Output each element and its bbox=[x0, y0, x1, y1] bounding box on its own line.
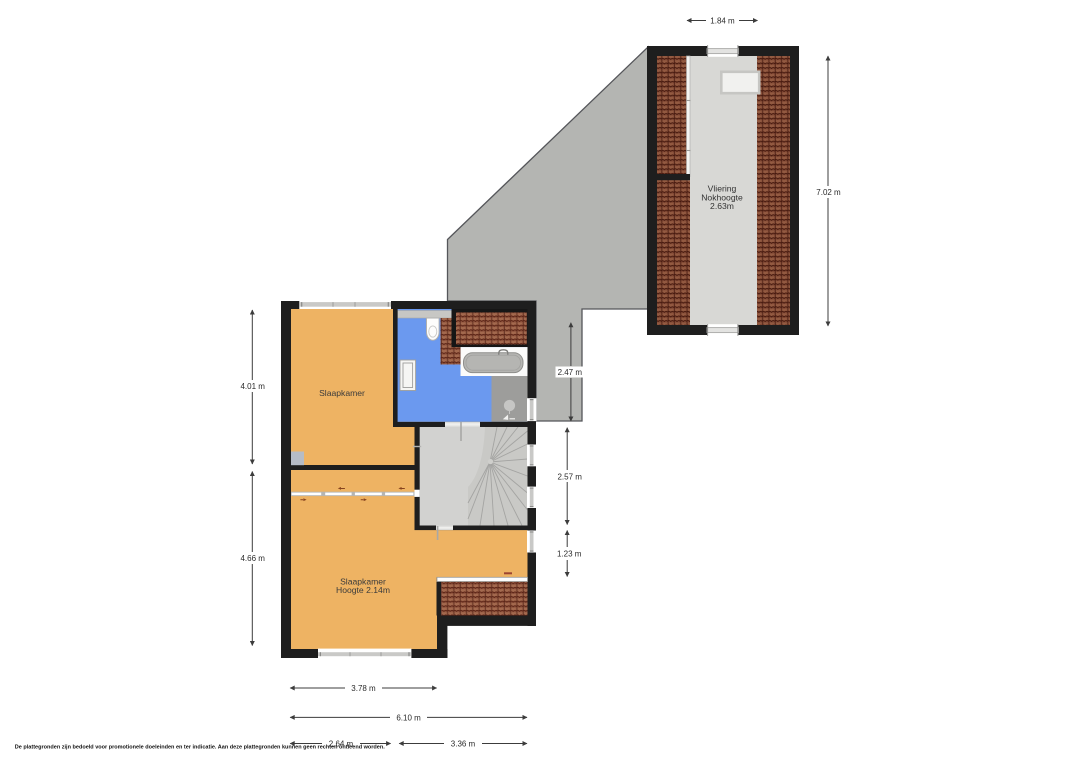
svg-text:2.47 m: 2.47 m bbox=[558, 368, 583, 377]
svg-text:Hoogte 2.14m: Hoogte 2.14m bbox=[336, 585, 390, 595]
svg-text:2.57 m: 2.57 m bbox=[557, 472, 582, 481]
svg-text:1.23 m: 1.23 m bbox=[557, 549, 582, 558]
svg-text:3.78 m: 3.78 m bbox=[351, 684, 376, 693]
svg-text:2.63m: 2.63m bbox=[710, 201, 734, 211]
svg-text:Slaapkamer: Slaapkamer bbox=[319, 388, 365, 398]
svg-text:1.84 m: 1.84 m bbox=[710, 17, 735, 26]
svg-text:De plattegronden zijn bedoeld: De plattegronden zijn bedoeld voor promo… bbox=[15, 745, 385, 751]
svg-text:6.10 m: 6.10 m bbox=[396, 713, 421, 722]
svg-text:7.02 m: 7.02 m bbox=[816, 188, 841, 197]
svg-text:4.66 m: 4.66 m bbox=[240, 554, 265, 563]
svg-text:3.36 m: 3.36 m bbox=[451, 740, 476, 749]
svg-text:4.01 m: 4.01 m bbox=[240, 382, 265, 391]
